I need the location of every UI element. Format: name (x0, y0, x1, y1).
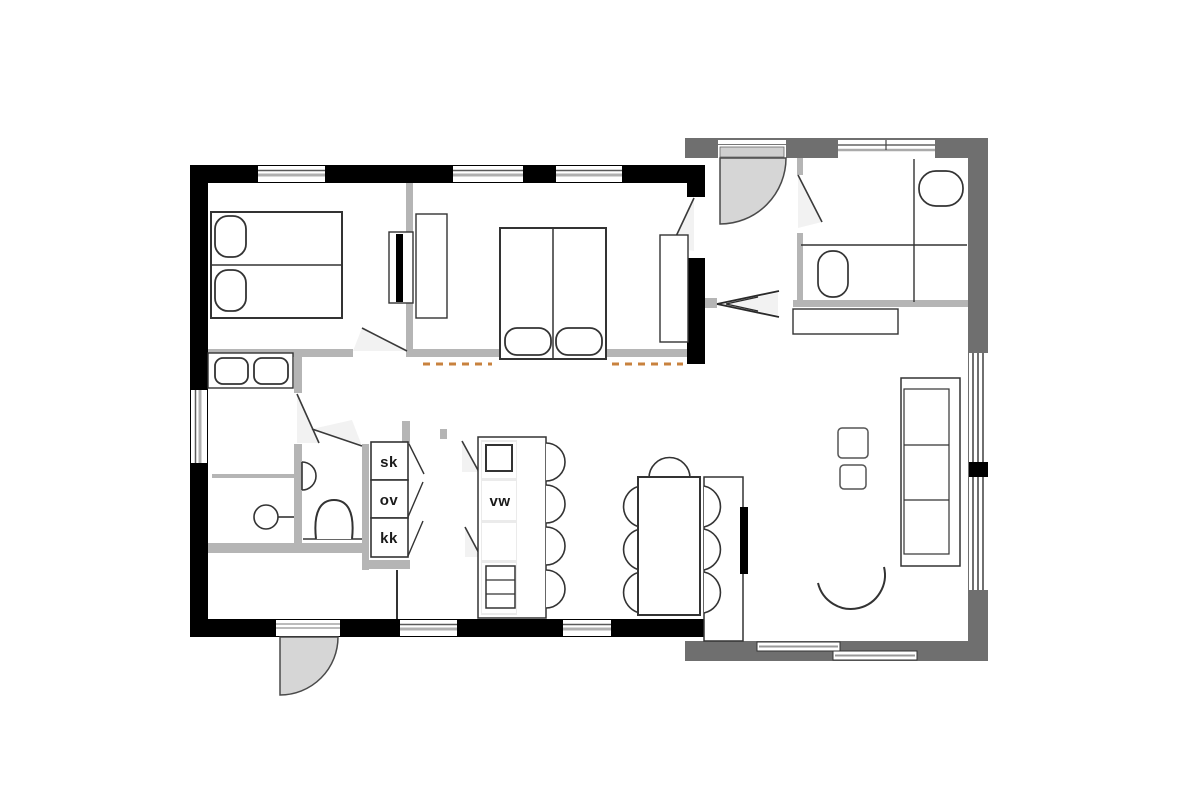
wall-segment (440, 429, 447, 439)
wall-segment (208, 543, 369, 553)
wall-segment (797, 233, 803, 307)
dining-furniture (624, 457, 748, 641)
bathroom-fixtures (208, 353, 362, 539)
coffee-table (838, 428, 868, 458)
door-swing-area (312, 420, 362, 446)
shower-drain (254, 505, 278, 529)
entrance-door-leaf (720, 158, 786, 224)
wash-basin (254, 358, 288, 384)
pillow (215, 270, 246, 311)
dining-table (638, 477, 700, 615)
wall-segment (294, 353, 302, 393)
wall-segment (362, 444, 369, 570)
wardrobe (416, 214, 447, 318)
utility-sink (818, 251, 848, 297)
sideboard (793, 309, 898, 334)
furniture (208, 159, 967, 641)
bedroom2-furniture (416, 214, 688, 359)
bedroom1-furniture (211, 212, 413, 318)
toilet (315, 500, 352, 539)
wall-sink (302, 462, 316, 490)
window-bottom-1 (400, 620, 457, 636)
threshold-annex-entrance-top (718, 140, 786, 158)
wall-segment (402, 421, 410, 444)
sofa-seat (904, 389, 949, 554)
cabinet-door-line (408, 521, 423, 556)
cabinet-door-line (408, 482, 423, 517)
window-top-1 (258, 166, 325, 182)
entry-direction-arrow (717, 291, 779, 317)
utility-basin (919, 171, 963, 206)
wall-segment (687, 183, 705, 197)
side-table (660, 235, 688, 342)
pillow (215, 216, 246, 257)
pillow (505, 328, 551, 355)
wall-segment (294, 444, 302, 553)
bench-backrest-bar (740, 507, 748, 574)
bar-chair (546, 443, 565, 481)
door-swing-arc (818, 567, 885, 609)
wall-segment (705, 298, 717, 308)
pillow (556, 328, 602, 355)
cabinet-door-line (409, 444, 424, 474)
kitchen-sink (486, 445, 512, 471)
dining-chair (649, 457, 690, 478)
island-label-vw: vw (489, 493, 510, 510)
floor-plan-drawing: sk ov kk vw (0, 0, 1200, 809)
entrance-door-leaf (280, 637, 338, 695)
window-left (191, 390, 207, 463)
threshold-main-entrance-bottom (276, 620, 340, 636)
worktop-cell (482, 523, 516, 560)
dresser-mirror-bar (396, 234, 403, 302)
cabinet-label-ov: ov (380, 492, 399, 509)
door-closed-leaf (720, 147, 784, 157)
window-post (969, 462, 988, 477)
floor-plan-page: sk ov kk vw (0, 0, 1200, 809)
wall-segment (797, 158, 803, 175)
wall-segment (793, 300, 968, 307)
window-annex-top (838, 140, 935, 158)
cabinet-label-sk: sk (380, 454, 398, 471)
living-room-furniture (818, 378, 960, 609)
wall-segment (687, 258, 705, 364)
wash-basin (215, 358, 248, 384)
stove (486, 566, 515, 608)
utility-room-fixtures (793, 159, 967, 334)
cabinet-label-kk: kk (380, 530, 398, 547)
bar-chair (546, 570, 565, 608)
window-top-3 (556, 166, 622, 182)
window-bottom-2 (563, 620, 611, 636)
bar-chair (546, 485, 565, 523)
window-top-2 (453, 166, 523, 182)
wall-segment (369, 560, 410, 569)
bar-chair (546, 527, 565, 565)
window-annex-right (969, 353, 988, 590)
coffee-table (840, 465, 866, 489)
